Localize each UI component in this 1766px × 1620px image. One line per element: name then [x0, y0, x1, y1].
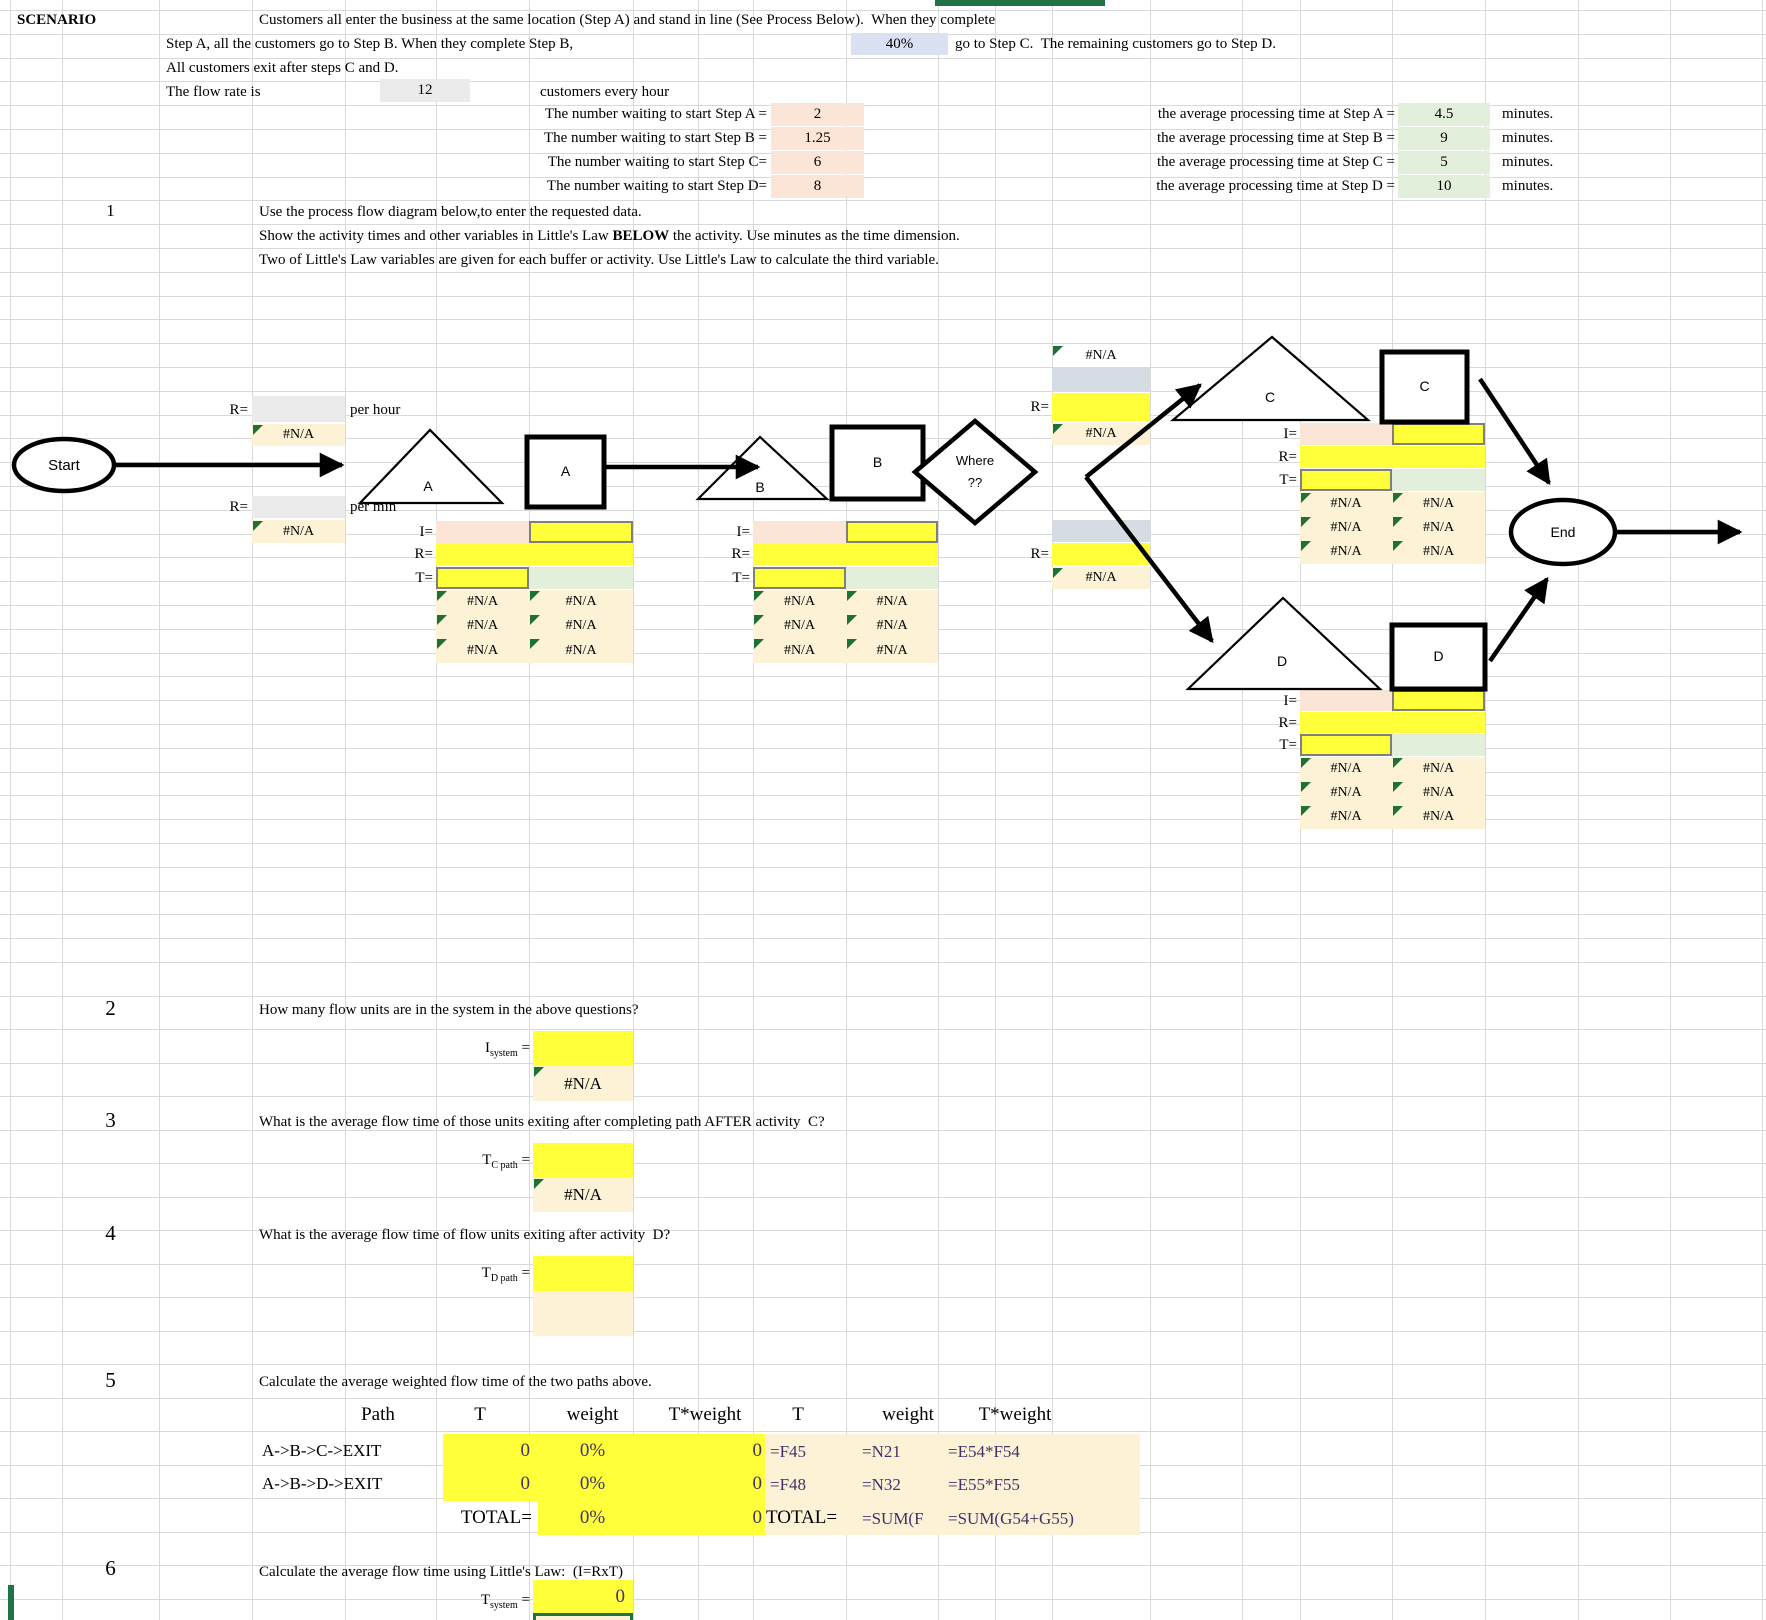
q6-number: 6	[62, 1556, 159, 1580]
q4-text: What is the average flow time of flow un…	[259, 1227, 670, 1244]
arrow-split-to-c	[1086, 385, 1200, 477]
q6-var-label: Tsystem =	[400, 1592, 530, 1612]
q6-text: Calculate the average flow time using Li…	[259, 1564, 623, 1581]
table-cell[interactable]: =F45	[770, 1442, 806, 1462]
activity-a-label: A	[527, 463, 604, 479]
q4-result-cell[interactable]	[533, 1291, 633, 1336]
q5-number: 5	[62, 1368, 159, 1392]
q2-number: 2	[62, 996, 159, 1020]
q2-var-label: Isystem =	[400, 1040, 530, 1060]
table-cell[interactable]: =E55*F55	[948, 1475, 1020, 1495]
table-cell[interactable]: =F48	[770, 1475, 806, 1495]
table-cell[interactable]: 0%	[545, 1473, 640, 1495]
col-t2-header: T	[773, 1404, 823, 1426]
table-cell[interactable]: =SUM(G54+G55)	[948, 1509, 1074, 1529]
table-cell[interactable]: 0%	[545, 1440, 640, 1462]
table-cell[interactable]: 0	[645, 1440, 762, 1462]
col-t-header: T	[455, 1404, 505, 1426]
buffer-d-label: D	[1262, 653, 1302, 669]
table-row-path: A->B->C->EXIT	[262, 1441, 381, 1461]
col-weight-header: weight	[545, 1404, 640, 1426]
end-label: End	[1513, 524, 1613, 540]
activity-d-label: D	[1392, 648, 1485, 664]
q3-text: What is the average flow time of those u…	[259, 1114, 825, 1131]
q4-input-cell[interactable]	[533, 1256, 633, 1291]
selected-cell[interactable]	[533, 1613, 633, 1620]
start-label: Start	[14, 457, 114, 474]
buffer-b-label: B	[740, 479, 780, 495]
table-total-label2: TOTAL=	[766, 1507, 837, 1529]
activity-b-label: B	[832, 454, 923, 470]
col-tweight-header: T*weight	[650, 1404, 760, 1426]
table-cell[interactable]: 0	[645, 1473, 762, 1495]
decision-label: Where??	[915, 450, 1035, 494]
buffer-c-label: C	[1250, 389, 1290, 405]
table-cell[interactable]: 0%	[545, 1507, 640, 1529]
arrow-d-to-end	[1490, 579, 1547, 661]
arrow-split-to-d	[1086, 477, 1212, 641]
table-row-path: A->B->D->EXIT	[262, 1474, 382, 1494]
q2-result-cell[interactable]: #N/A	[533, 1066, 633, 1101]
q2-input-cell[interactable]	[533, 1031, 633, 1066]
q3-result-cell[interactable]: #N/A	[533, 1178, 633, 1212]
q5-text: Calculate the average weighted flow time…	[259, 1374, 652, 1391]
arrow-c-to-end	[1480, 379, 1549, 483]
q3-input-cell[interactable]	[533, 1143, 633, 1178]
table-cell[interactable]: 0	[445, 1440, 530, 1462]
spreadsheet-canvas: SCENARIO Customers all enter the busines…	[0, 0, 1766, 1620]
buffer-d-triangle	[1188, 598, 1380, 689]
q3-number: 3	[62, 1108, 159, 1132]
col-tweight2-header: T*weight	[960, 1404, 1070, 1426]
table-cell[interactable]: 0	[445, 1473, 530, 1495]
activity-c-label: C	[1382, 378, 1467, 394]
q6-input-cell[interactable]: 0	[533, 1580, 633, 1613]
table-cell[interactable]: =SUM(F	[862, 1509, 924, 1529]
table-cell[interactable]: 0	[645, 1507, 762, 1529]
table-cell[interactable]: =N32	[862, 1475, 901, 1495]
q4-var-label: TD path =	[400, 1265, 530, 1285]
col-weight2-header: weight	[860, 1404, 956, 1426]
q3-var-label: TC path =	[400, 1152, 530, 1172]
q4-number: 4	[62, 1221, 159, 1245]
table-cell[interactable]: =E54*F54	[948, 1442, 1020, 1462]
table-total-label: TOTAL=	[400, 1507, 532, 1529]
buffer-a-label: A	[408, 478, 448, 494]
buffer-c-triangle	[1173, 337, 1368, 420]
table-cell[interactable]: =N21	[862, 1442, 901, 1462]
col-path-header: Path	[330, 1404, 426, 1426]
q2-text: How many flow units are in the system in…	[259, 1002, 639, 1019]
